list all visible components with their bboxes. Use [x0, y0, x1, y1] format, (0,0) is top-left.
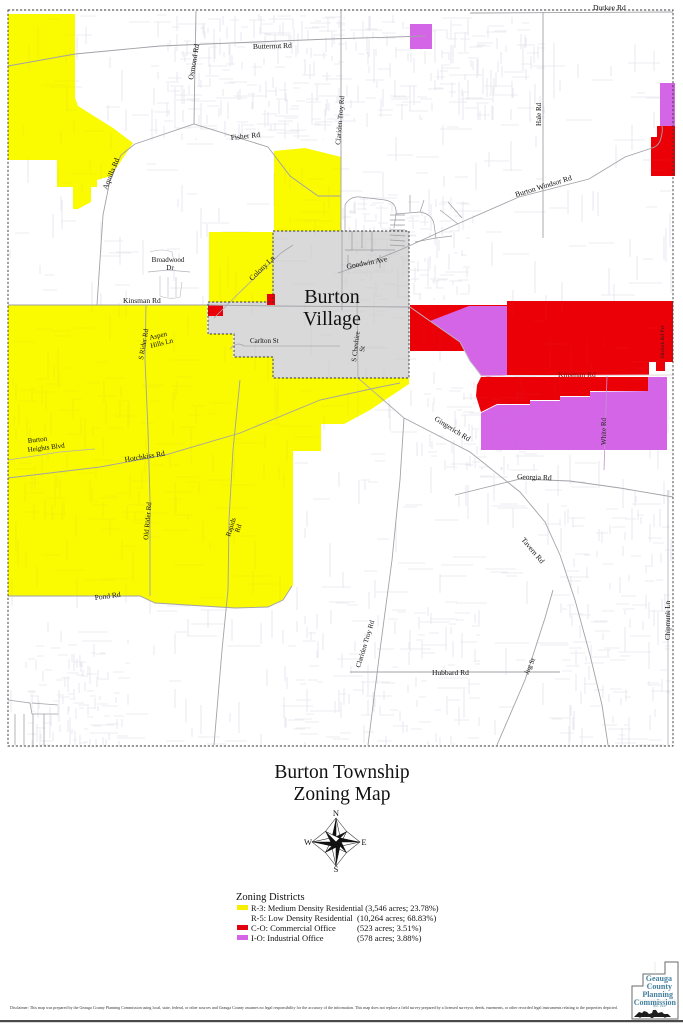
svg-text:R-3: Medium Density Residentia: R-3: Medium Density Residential (3,546 a…: [251, 904, 439, 913]
svg-text:W: W: [304, 837, 312, 847]
svg-text:C-O: Commercial Office: C-O: Commercial Office: [251, 923, 336, 933]
svg-text:Kinsman Rd: Kinsman Rd: [123, 296, 161, 305]
svg-text:Zoning Districts: Zoning Districts: [236, 892, 305, 903]
svg-text:S: S: [334, 864, 339, 874]
svg-text:E: E: [361, 837, 366, 847]
svg-text:Hale Rd: Hale Rd: [535, 102, 543, 126]
svg-text:St: St: [358, 345, 367, 352]
svg-text:Hubbard Rd: Hubbard Rd: [432, 668, 469, 677]
svg-text:(523 acres; 3.51%): (523 acres; 3.51%): [357, 923, 422, 933]
svg-text:Butternut Rd: Butternut Rd: [253, 41, 292, 51]
svg-text:Chipmunk Ln: Chipmunk Ln: [664, 600, 672, 640]
svg-text:Est. 1947: Est. 1947: [653, 1004, 666, 1008]
svg-text:White Rd: White Rd: [600, 417, 608, 445]
svg-text:Village: Village: [303, 308, 361, 330]
svg-text:N: N: [333, 808, 339, 818]
svg-text:(10,264 acres; 68.83%): (10,264 acres; 68.83%): [357, 913, 436, 923]
svg-text:(578 acres; 3.88%): (578 acres; 3.88%): [357, 933, 422, 943]
svg-text:Georgia Rd: Georgia Rd: [517, 472, 552, 482]
svg-text:Carlton St: Carlton St: [250, 337, 279, 345]
svg-text:Dr: Dr: [166, 264, 174, 272]
svg-text:Burton: Burton: [304, 286, 360, 308]
svg-text:Hickok Rd Pvt: Hickok Rd Pvt: [660, 325, 666, 358]
svg-text:Kinsman Rd: Kinsman Rd: [558, 370, 596, 379]
svg-text:I-O: Industrial Office: I-O: Industrial Office: [251, 933, 324, 943]
svg-text:Broadwood: Broadwood: [152, 256, 185, 264]
svg-text:Burton Township: Burton Township: [274, 762, 409, 783]
svg-text:R-5: Low Density Residential: R-5: Low Density Residential: [251, 913, 353, 923]
svg-text:Zoning Map: Zoning Map: [294, 784, 391, 805]
svg-text:Durkee Rd: Durkee Rd: [593, 3, 626, 12]
